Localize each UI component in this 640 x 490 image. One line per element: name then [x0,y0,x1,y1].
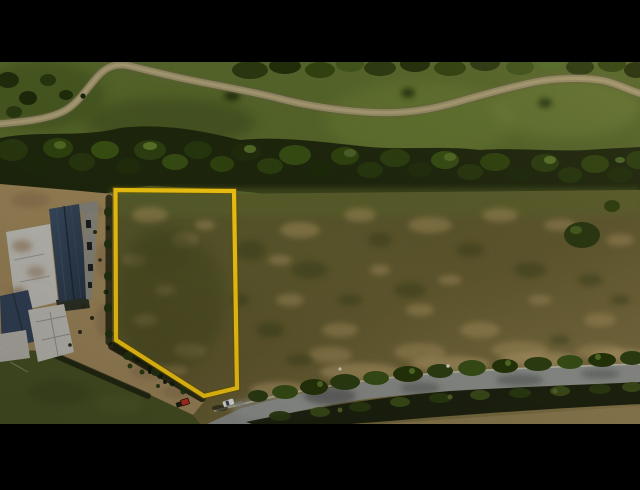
letterbox-bottom [0,424,640,490]
screenshot-frame [0,0,640,490]
letterbox-top [0,0,640,62]
film-grain [0,62,640,424]
aerial-photo-canvas [0,0,640,490]
